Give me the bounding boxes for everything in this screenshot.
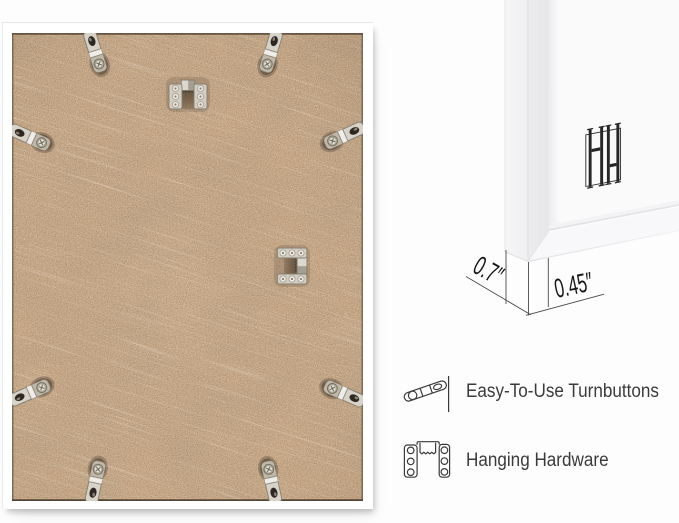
svg-text:0.7″: 0.7″ (468, 250, 508, 290)
